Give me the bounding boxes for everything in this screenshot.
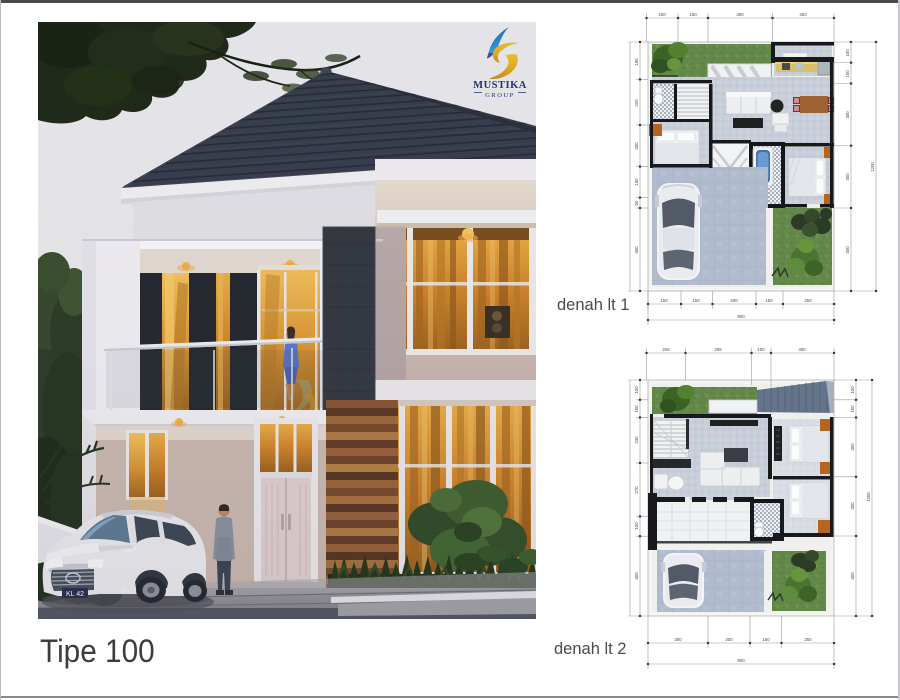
svg-text:220: 220 <box>634 99 639 107</box>
svg-text:150: 150 <box>658 12 666 17</box>
svg-text:400: 400 <box>634 246 639 254</box>
svg-text:295: 295 <box>714 347 722 352</box>
svg-text:1200: 1200 <box>870 162 875 172</box>
svg-text:200: 200 <box>725 637 733 642</box>
svg-text:100: 100 <box>850 405 855 413</box>
svg-text:150: 150 <box>689 12 697 17</box>
svg-text:205: 205 <box>662 347 670 352</box>
svg-text:300: 300 <box>845 111 850 119</box>
svg-text:100: 100 <box>757 347 765 352</box>
svg-text:300: 300 <box>736 12 744 17</box>
svg-text:400: 400 <box>634 572 639 580</box>
svg-text:300: 300 <box>850 443 855 451</box>
svg-text:230: 230 <box>634 436 639 444</box>
svg-text:100: 100 <box>850 386 855 394</box>
svg-text:250: 250 <box>804 637 812 642</box>
svg-text:400: 400 <box>845 246 850 254</box>
svg-text:150: 150 <box>692 298 700 303</box>
svg-text:180: 180 <box>634 58 639 66</box>
svg-text:900: 900 <box>737 658 745 663</box>
svg-text:300: 300 <box>845 173 850 181</box>
svg-text:400: 400 <box>850 572 855 580</box>
svg-text:100: 100 <box>634 522 639 530</box>
svg-text:250: 250 <box>804 298 812 303</box>
svg-text:300: 300 <box>798 347 806 352</box>
svg-text:300: 300 <box>799 12 807 17</box>
svg-text:200: 200 <box>730 298 738 303</box>
svg-text:150: 150 <box>765 298 773 303</box>
svg-text:GROUP: GROUP <box>485 92 515 99</box>
svg-text:50: 50 <box>634 200 639 205</box>
svg-text:300: 300 <box>850 502 855 510</box>
svg-text:900: 900 <box>737 314 745 319</box>
svg-text:1200: 1200 <box>866 492 871 502</box>
svg-text:150: 150 <box>634 178 639 186</box>
svg-text:MUSTIKA: MUSTIKA <box>473 80 527 91</box>
svg-text:150: 150 <box>762 637 770 642</box>
svg-text:200: 200 <box>634 142 639 150</box>
svg-text:100: 100 <box>845 70 850 78</box>
svg-text:270: 270 <box>634 486 639 494</box>
svg-text:100: 100 <box>634 405 639 413</box>
svg-text:150: 150 <box>660 298 668 303</box>
svg-text:100: 100 <box>845 49 850 57</box>
svg-text:100: 100 <box>634 386 639 394</box>
svg-text:300: 300 <box>674 637 682 642</box>
